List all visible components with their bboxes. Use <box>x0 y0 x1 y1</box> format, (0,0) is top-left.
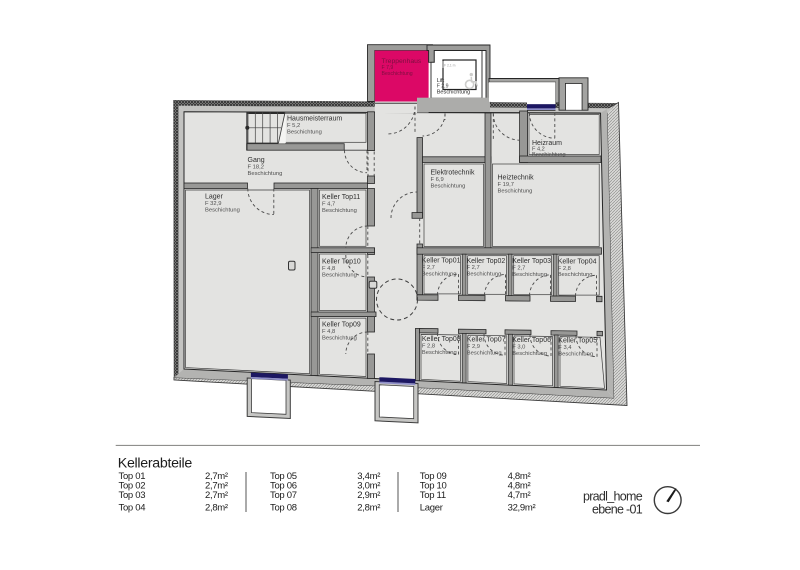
svg-text:Beschichtung: Beschichtung <box>558 351 593 357</box>
svg-text:F 2,1 m: F 2,1 m <box>444 64 456 68</box>
svg-text:F 2,9: F 2,9 <box>467 344 480 350</box>
svg-text:32,9m²: 32,9m² <box>508 502 536 513</box>
svg-text:Beschichtung: Beschichtung <box>422 271 457 277</box>
svg-text:F 4,7: F 4,7 <box>322 201 335 207</box>
svg-text:Beschichtung: Beschichtung <box>248 171 283 177</box>
svg-text:Beschichtung: Beschichtung <box>322 208 357 214</box>
svg-text:Beschichtung: Beschichtung <box>287 129 322 135</box>
svg-text:4,7m²: 4,7m² <box>508 490 531 501</box>
svg-text:Beschichtung: Beschichtung <box>467 272 502 278</box>
svg-text:F 19,7: F 19,7 <box>498 182 514 188</box>
svg-text:F 32,9: F 32,9 <box>205 201 221 207</box>
svg-text:Heiztechnik: Heiztechnik <box>498 175 535 182</box>
svg-text:Keller Top01: Keller Top01 <box>422 258 461 265</box>
svg-text:Beschichtung: Beschichtung <box>437 89 471 95</box>
svg-text:Beschichtung: Beschichtung <box>382 71 413 77</box>
svg-text:Beschichtung: Beschichtung <box>558 272 593 278</box>
svg-text:Kellerabteile: Kellerabteile <box>118 455 193 471</box>
svg-text:Top 08: Top 08 <box>270 502 297 513</box>
svg-text:Keller Top10: Keller Top10 <box>322 259 361 266</box>
svg-text:Beschichtung: Beschichtung <box>431 183 466 189</box>
svg-text:Beschichtung: Beschichtung <box>532 152 566 158</box>
svg-text:Beschichtung: Beschichtung <box>498 188 533 194</box>
svg-text:Beschichtung: Beschichtung <box>205 207 240 213</box>
svg-text:2,8m²: 2,8m² <box>205 502 228 513</box>
svg-text:Beschichtung: Beschichtung <box>467 350 502 356</box>
svg-text:F 2,7: F 2,7 <box>422 265 435 271</box>
svg-text:2,9m²: 2,9m² <box>357 490 380 501</box>
svg-text:ebene -01: ebene -01 <box>592 503 643 517</box>
svg-text:Hausmeisterraum: Hausmeisterraum <box>287 116 342 123</box>
svg-text:F 2,8: F 2,8 <box>558 266 571 272</box>
svg-text:Keller Top02: Keller Top02 <box>467 258 506 265</box>
svg-text:2,7m²: 2,7m² <box>205 490 228 501</box>
svg-text:Beschichtung: Beschichtung <box>322 272 357 278</box>
svg-text:Beschichtung: Beschichtung <box>512 351 547 357</box>
svg-text:Keller Top04: Keller Top04 <box>558 258 597 265</box>
svg-text:F 3,0: F 3,0 <box>512 344 525 350</box>
svg-text:Beschichtung: Beschichtung <box>322 335 357 341</box>
svg-text:Keller Top09: Keller Top09 <box>322 322 361 329</box>
svg-text:F 3,4: F 3,4 <box>558 345 572 351</box>
svg-text:Elektrotechnik: Elektrotechnik <box>431 170 475 177</box>
svg-text:Keller Top07: Keller Top07 <box>467 337 506 344</box>
svg-text:F 2,7: F 2,7 <box>467 265 480 271</box>
svg-text:F 6,9: F 6,9 <box>431 177 444 183</box>
svg-text:Keller Top08: Keller Top08 <box>422 336 461 343</box>
svg-text:Beschichtung: Beschichtung <box>422 350 457 356</box>
svg-text:Top 07: Top 07 <box>270 490 297 501</box>
svg-text:F 2,7: F 2,7 <box>512 266 525 272</box>
svg-text:2,8m²: 2,8m² <box>357 502 380 513</box>
svg-text:Lager: Lager <box>420 502 443 513</box>
svg-text:Keller Top11: Keller Top11 <box>322 194 360 201</box>
svg-text:Treppenhaus: Treppenhaus <box>382 58 422 65</box>
svg-text:Top 03: Top 03 <box>119 490 146 501</box>
svg-text:F 5,2: F 5,2 <box>287 123 300 129</box>
svg-text:Top 04: Top 04 <box>119 502 146 513</box>
svg-text:Beschichtung: Beschichtung <box>512 272 547 278</box>
svg-text:F 2,8: F 2,8 <box>422 343 435 349</box>
svg-text:Keller Top06: Keller Top06 <box>512 337 551 344</box>
svg-text:F 4,8: F 4,8 <box>322 266 335 272</box>
svg-text:Lager: Lager <box>205 194 224 201</box>
svg-text:Keller Top03: Keller Top03 <box>512 258 551 265</box>
svg-text:Keller Top05: Keller Top05 <box>558 338 597 345</box>
svg-text:F 4,8: F 4,8 <box>322 329 335 335</box>
svg-text:Gang: Gang <box>248 157 265 164</box>
svg-text:pradl_home: pradl_home <box>583 490 643 504</box>
svg-text:F 18,2: F 18,2 <box>248 164 264 170</box>
svg-text:Top 11: Top 11 <box>420 490 446 501</box>
